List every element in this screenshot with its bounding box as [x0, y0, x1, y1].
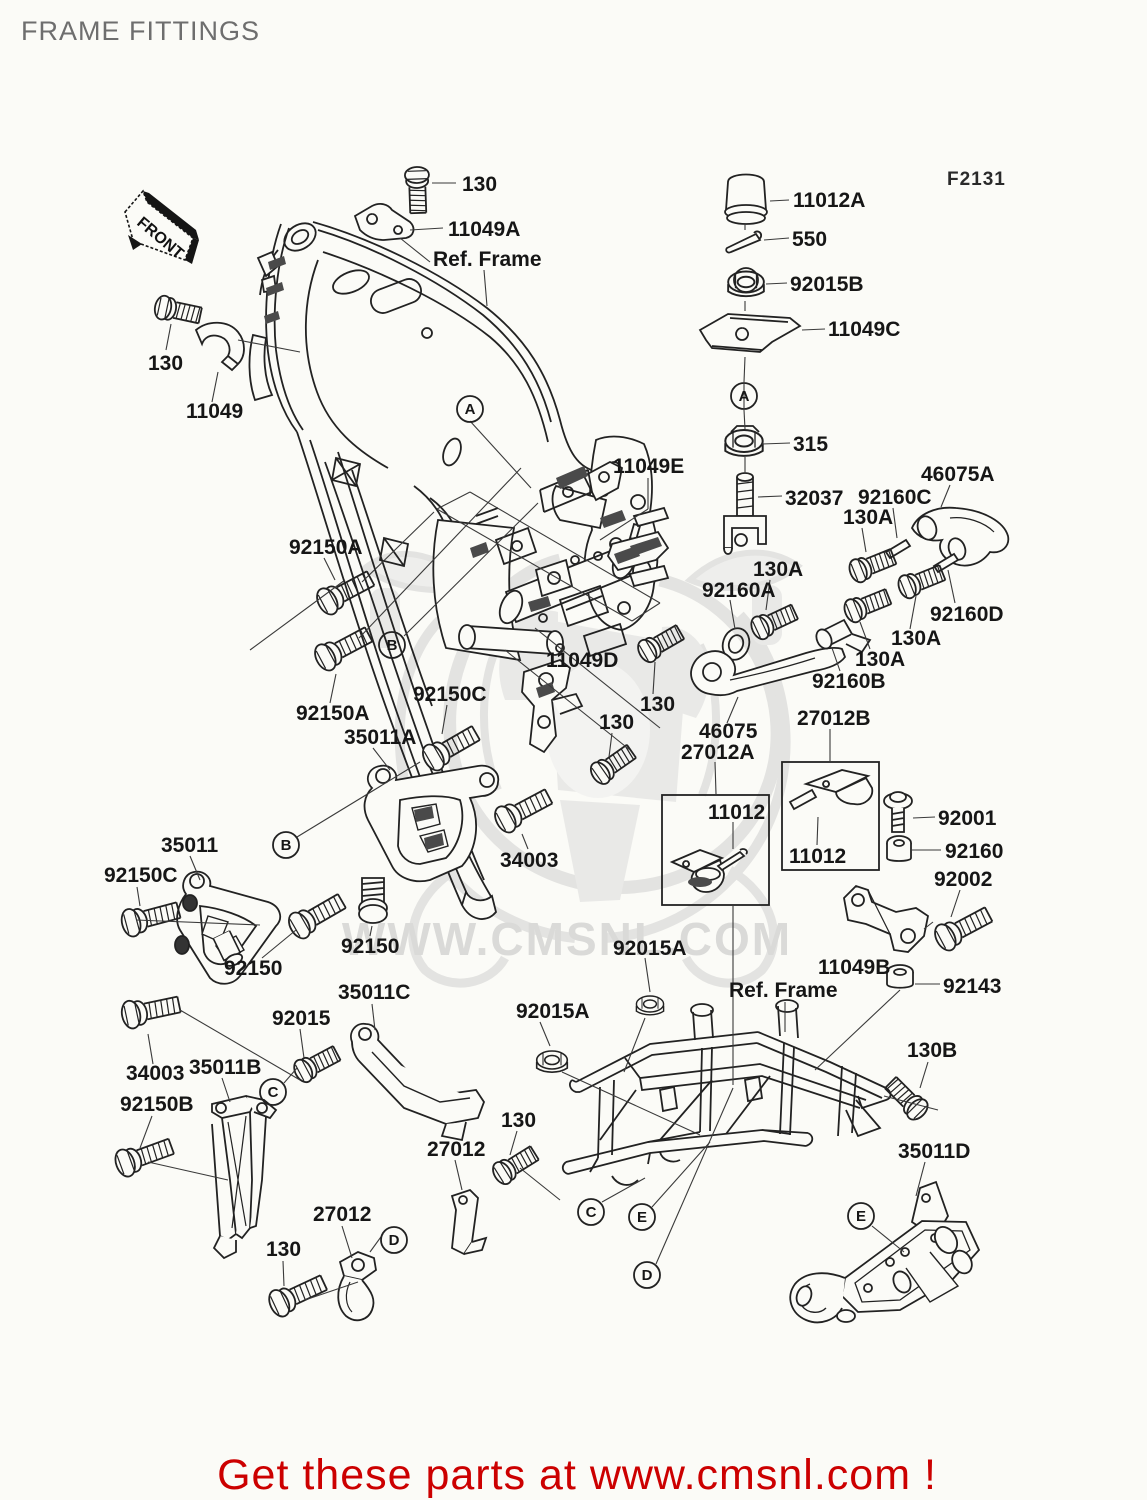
svg-text:550: 550: [792, 228, 827, 251]
svg-text:92150B: 92150B: [120, 1093, 194, 1116]
svg-text:130A: 130A: [855, 648, 905, 671]
svg-text:Ref. Frame: Ref. Frame: [433, 248, 542, 271]
svg-text:11049A: 11049A: [448, 218, 520, 241]
svg-text:35011D: 35011D: [898, 1140, 970, 1163]
svg-text:315: 315: [793, 433, 828, 456]
svg-text:46075A: 46075A: [921, 463, 995, 486]
svg-text:32037: 32037: [785, 487, 843, 510]
svg-text:130: 130: [462, 173, 497, 196]
svg-text:130A: 130A: [843, 506, 893, 529]
svg-text:130A: 130A: [891, 627, 941, 650]
svg-text:34003: 34003: [126, 1062, 184, 1085]
svg-text:35011C: 35011C: [338, 981, 410, 1004]
svg-text:92150C: 92150C: [413, 683, 487, 706]
svg-text:27012A: 27012A: [681, 741, 755, 764]
svg-text:11012: 11012: [789, 845, 846, 868]
svg-text:11049: 11049: [186, 400, 243, 423]
svg-text:35011B: 35011B: [189, 1056, 261, 1079]
svg-text:F2131: F2131: [947, 169, 1006, 190]
svg-text:B: B: [281, 837, 292, 854]
svg-text:130: 130: [640, 693, 675, 716]
svg-text:11012: 11012: [708, 801, 765, 824]
svg-text:27012: 27012: [427, 1138, 485, 1161]
svg-text:11012A: 11012A: [793, 189, 865, 212]
svg-text:92015A: 92015A: [516, 1000, 590, 1023]
svg-text:92001: 92001: [938, 807, 997, 830]
svg-text:35011A: 35011A: [344, 726, 416, 749]
svg-text:34003: 34003: [500, 849, 558, 872]
svg-text:46075: 46075: [699, 720, 758, 743]
svg-text:35011: 35011: [161, 834, 219, 857]
svg-text:D: D: [389, 1232, 400, 1249]
svg-text:130: 130: [266, 1238, 301, 1261]
svg-text:WWW.CMSNL.COM: WWW.CMSNL.COM: [342, 913, 792, 965]
svg-text:92150A: 92150A: [289, 536, 363, 559]
svg-text:92160D: 92160D: [930, 603, 1004, 626]
svg-text:C: C: [268, 1084, 279, 1101]
svg-text:92143: 92143: [943, 975, 1001, 998]
svg-text:130A: 130A: [753, 558, 803, 581]
svg-text:FRAME FITTINGS: FRAME FITTINGS: [21, 16, 260, 46]
svg-text:A: A: [465, 401, 476, 418]
svg-text:92015B: 92015B: [790, 273, 864, 296]
svg-text:11049B: 11049B: [818, 956, 890, 979]
svg-text:11049D: 11049D: [546, 649, 618, 672]
svg-text:Ref. Frame: Ref. Frame: [729, 979, 838, 1002]
svg-text:B: B: [387, 637, 398, 654]
svg-text:E: E: [856, 1208, 866, 1225]
svg-text:11049E: 11049E: [613, 455, 684, 478]
svg-text:92015A: 92015A: [613, 937, 687, 960]
svg-text:C: C: [586, 1204, 597, 1221]
svg-text:130: 130: [501, 1109, 536, 1132]
svg-text:E: E: [637, 1209, 647, 1226]
svg-text:92150: 92150: [341, 935, 399, 958]
svg-text:11049C: 11049C: [828, 318, 900, 341]
svg-text:92150: 92150: [224, 957, 282, 980]
svg-text:27012B: 27012B: [797, 707, 871, 730]
svg-text:27012: 27012: [313, 1203, 371, 1226]
svg-text:D: D: [642, 1267, 653, 1284]
svg-text:92015: 92015: [272, 1007, 331, 1030]
svg-text:130B: 130B: [907, 1039, 957, 1062]
svg-text:92160A: 92160A: [702, 579, 776, 602]
svg-text:92002: 92002: [934, 868, 992, 891]
svg-text:130: 130: [148, 352, 183, 375]
svg-text:130: 130: [599, 711, 634, 734]
svg-text:A: A: [739, 388, 750, 405]
svg-text:92150A: 92150A: [296, 702, 370, 725]
svg-text:92150C: 92150C: [104, 864, 178, 887]
svg-text:Get these parts at www.cmsnl.c: Get these parts at www.cmsnl.com !: [217, 1451, 937, 1499]
svg-text:92160: 92160: [945, 840, 1003, 863]
svg-text:92160B: 92160B: [812, 670, 886, 693]
